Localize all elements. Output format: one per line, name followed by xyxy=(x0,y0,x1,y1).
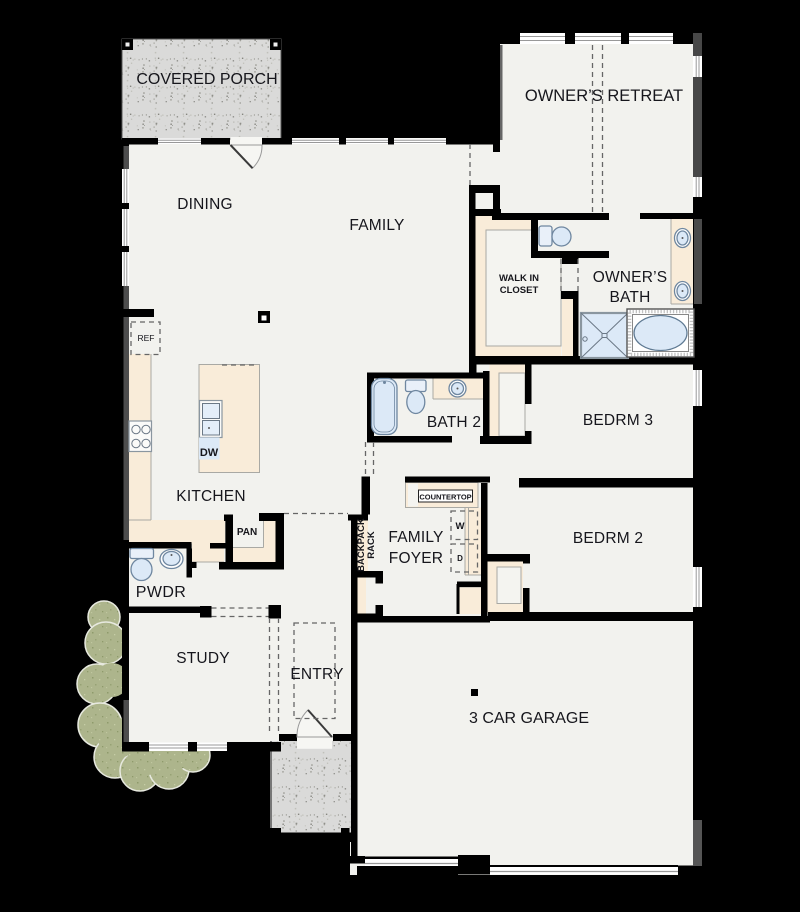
svg-text:OWNER’S RETREAT: OWNER’S RETREAT xyxy=(525,87,683,105)
svg-text:REF: REF xyxy=(138,333,155,343)
svg-text:BATH 2: BATH 2 xyxy=(427,414,481,431)
svg-text:FOYER: FOYER xyxy=(389,550,443,567)
svg-text:BATH: BATH xyxy=(610,289,651,306)
svg-text:WALK IN: WALK IN xyxy=(499,273,539,284)
svg-text:DINING: DINING xyxy=(177,196,232,213)
svg-text:PAN: PAN xyxy=(237,527,257,538)
svg-text:DW: DW xyxy=(200,447,219,459)
svg-text:BEDRM 3: BEDRM 3 xyxy=(583,412,653,429)
svg-text:OWNER’S: OWNER’S xyxy=(593,269,668,286)
svg-text:STUDY: STUDY xyxy=(176,650,230,667)
svg-text:KITCHEN: KITCHEN xyxy=(176,488,245,505)
svg-text:W: W xyxy=(456,521,465,532)
svg-text:FAMILY: FAMILY xyxy=(349,217,404,234)
svg-text:FAMILY: FAMILY xyxy=(388,529,443,546)
svg-text:PWDR: PWDR xyxy=(136,584,186,601)
svg-text:CLOSET: CLOSET xyxy=(500,285,539,296)
svg-text:RACK: RACK xyxy=(366,531,377,559)
svg-text:3 CAR GARAGE: 3 CAR GARAGE xyxy=(469,710,589,727)
svg-text:COVERED PORCH: COVERED PORCH xyxy=(136,71,277,88)
svg-text:COUNTERTOP: COUNTERTOP xyxy=(419,492,471,501)
svg-text:BEDRM 2: BEDRM 2 xyxy=(573,530,643,547)
svg-text:ENTRY: ENTRY xyxy=(290,666,343,683)
svg-text:D: D xyxy=(457,554,463,563)
